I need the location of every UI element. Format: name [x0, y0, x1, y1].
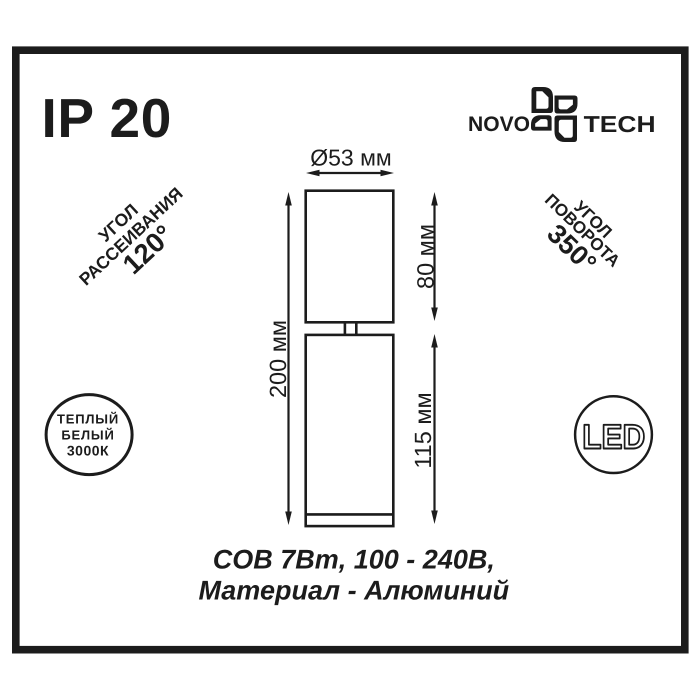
svg-text:Ø53 мм: Ø53 мм — [310, 145, 392, 171]
svg-text:LED: LED — [582, 419, 645, 457]
svg-text:NOVO: NOVO — [468, 113, 530, 136]
svg-text:200 мм: 200 мм — [265, 320, 291, 398]
svg-text:3000К: 3000К — [67, 443, 109, 459]
svg-text:COB 7Вm, 100 - 240В,: COB 7Вm, 100 - 240В, — [213, 544, 495, 574]
svg-text:80 мм: 80 мм — [413, 224, 439, 289]
svg-text:TECH: TECH — [584, 111, 656, 137]
svg-text:Материал - Алюминий: Материал - Алюминий — [198, 575, 509, 605]
svg-text:ТЕПЛЫЙ: ТЕПЛЫЙ — [57, 412, 119, 427]
svg-text:115 мм: 115 мм — [410, 392, 436, 468]
svg-text:IP 20: IP 20 — [42, 87, 172, 149]
svg-text:БЕЛЫЙ: БЕЛЫЙ — [61, 428, 114, 443]
